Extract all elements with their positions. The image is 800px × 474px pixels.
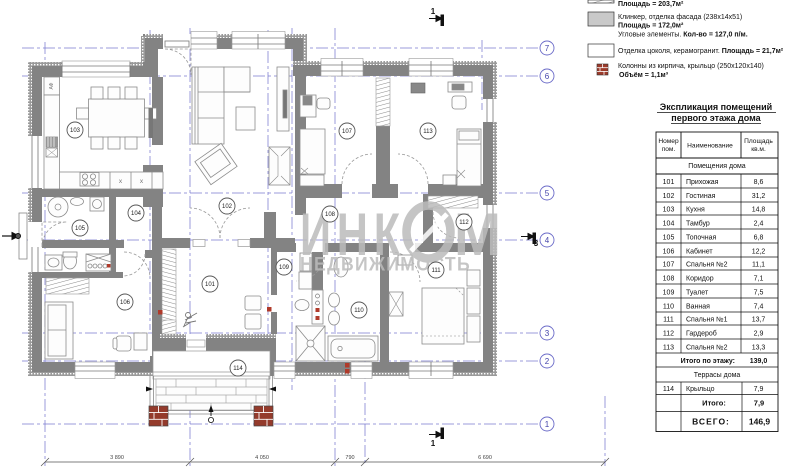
svg-text:Наименование: Наименование: [687, 143, 733, 150]
svg-text:2,9: 2,9: [754, 331, 764, 338]
svg-text:108: 108: [663, 276, 675, 283]
svg-text:Отделка цоколя, керамогранит.: Отделка цоколя, керамогранит. Площадь = …: [618, 48, 784, 55]
svg-text:3: 3: [545, 329, 550, 338]
svg-text:31,2: 31,2: [752, 193, 766, 200]
svg-text:1: 1: [431, 7, 436, 16]
svg-text:Гостиная: Гостиная: [686, 193, 716, 200]
svg-text:107: 107: [663, 262, 675, 269]
svg-text:112: 112: [459, 220, 469, 226]
svg-text:Экспликация помещений: Экспликация помещений: [660, 102, 772, 112]
svg-text:111: 111: [431, 268, 441, 274]
svg-text:3 890: 3 890: [110, 455, 124, 461]
svg-text:103: 103: [663, 207, 675, 214]
svg-text:Колонны из кирпича, крыльцо (2: Колонны из кирпича, крыльцо (250x120x140…: [618, 63, 764, 70]
svg-text:109: 109: [663, 290, 675, 297]
svg-text:Кабинет: Кабинет: [686, 248, 713, 256]
svg-text:Крыльцо: Крыльцо: [686, 386, 715, 393]
svg-text:5: 5: [545, 189, 550, 198]
svg-text:НЕДВИЖИМОСТЬ: НЕДВИЖИМОСТЬ: [300, 253, 471, 275]
svg-text:первого этажа дома: первого этажа дома: [671, 113, 761, 123]
svg-text:Спальня №2: Спальня №2: [686, 262, 728, 269]
svg-text:6,8: 6,8: [754, 235, 764, 242]
svg-text:102: 102: [222, 204, 233, 210]
svg-text:14,8: 14,8: [752, 207, 766, 214]
svg-text:2: 2: [545, 357, 550, 366]
svg-text:110: 110: [354, 308, 364, 314]
svg-text:109: 109: [279, 265, 290, 271]
svg-text:139,0: 139,0: [750, 358, 768, 365]
svg-text:3: 3: [534, 239, 539, 248]
svg-text:Угловые элементы. Кол-во = 127: Угловые элементы. Кол-во = 127,0 п/м.: [618, 32, 748, 39]
svg-text:ВСЕГО:: ВСЕГО:: [692, 417, 730, 427]
svg-text:114: 114: [233, 366, 243, 372]
svg-text:Топочная: Топочная: [686, 235, 717, 242]
svg-text:Объём = 1,1м³: Объём = 1,1м³: [619, 71, 669, 79]
svg-text:7,9: 7,9: [754, 399, 764, 408]
svg-text:101: 101: [663, 179, 675, 186]
svg-text:Номер: Номер: [658, 138, 679, 145]
svg-text:105: 105: [663, 235, 675, 242]
svg-text:пом.: пом.: [662, 146, 676, 153]
svg-text:Ванная: Ванная: [686, 304, 710, 311]
svg-text:7,9: 7,9: [754, 386, 764, 393]
svg-text:6: 6: [545, 72, 550, 81]
svg-text:7,4: 7,4: [754, 304, 764, 311]
svg-text:107: 107: [342, 129, 353, 135]
svg-text:103: 103: [70, 128, 81, 134]
svg-text:Спальня №1: Спальня №1: [686, 317, 728, 324]
svg-text:8,6: 8,6: [754, 179, 764, 186]
svg-text:13,3: 13,3: [752, 345, 766, 352]
svg-text:Террасы дома: Террасы дома: [694, 372, 741, 379]
svg-text:104: 104: [663, 221, 675, 228]
svg-text:4 050: 4 050: [255, 455, 269, 461]
svg-text:2,4: 2,4: [754, 221, 764, 228]
svg-text:104: 104: [131, 211, 142, 217]
svg-text:Итого:: Итого:: [702, 399, 726, 408]
svg-text:1: 1: [431, 439, 436, 448]
svg-text:105: 105: [75, 226, 86, 232]
svg-text:7: 7: [545, 44, 550, 53]
svg-text:114: 114: [663, 386, 674, 393]
svg-text:Итого по этажу:: Итого по этажу:: [681, 358, 735, 365]
svg-text:Кухня: Кухня: [686, 207, 705, 214]
svg-text:102: 102: [663, 193, 675, 200]
svg-text:106: 106: [663, 249, 675, 256]
svg-text:7,1: 7,1: [754, 276, 764, 283]
svg-text:кв.м.: кв.м.: [751, 146, 766, 153]
svg-text:790: 790: [345, 455, 354, 461]
svg-text:11,1: 11,1: [752, 262, 765, 269]
svg-text:АФ: АФ: [49, 82, 55, 89]
svg-text:113: 113: [423, 129, 433, 135]
svg-text:111: 111: [663, 317, 674, 324]
svg-text:108: 108: [325, 212, 336, 218]
svg-text:146,9: 146,9: [749, 417, 771, 427]
svg-text:13,7: 13,7: [752, 317, 766, 324]
svg-text:113: 113: [663, 345, 674, 352]
svg-text:1: 1: [545, 420, 550, 429]
svg-text:110: 110: [663, 304, 674, 311]
svg-text:101: 101: [205, 282, 216, 288]
svg-text:Коридор: Коридор: [686, 276, 714, 283]
svg-text:12,2: 12,2: [752, 249, 766, 256]
svg-text:6 690: 6 690: [478, 455, 492, 461]
svg-text:Площадь = 172,0м²: Площадь = 172,0м²: [618, 23, 684, 30]
svg-text:112: 112: [663, 331, 674, 338]
svg-text:Туалет: Туалет: [686, 290, 709, 297]
svg-text:Площадь = 203,7м²: Площадь = 203,7м²: [618, 1, 684, 8]
svg-text:Помещения дома: Помещения дома: [688, 163, 746, 170]
svg-text:Тамбур: Тамбур: [686, 220, 710, 228]
svg-text:Спальня №2: Спальня №2: [686, 345, 728, 352]
svg-text:106: 106: [120, 300, 131, 306]
svg-text:Площадь: Площадь: [744, 138, 773, 145]
svg-text:Прихожая: Прихожая: [686, 179, 719, 186]
svg-text:4: 4: [545, 236, 550, 245]
svg-text:Клинкер, отделка фасада (238x1: Клинкер, отделка фасада (238x14x51): [618, 14, 742, 21]
svg-text:7,5: 7,5: [754, 290, 764, 297]
svg-text:Гардероб: Гардероб: [686, 330, 717, 338]
